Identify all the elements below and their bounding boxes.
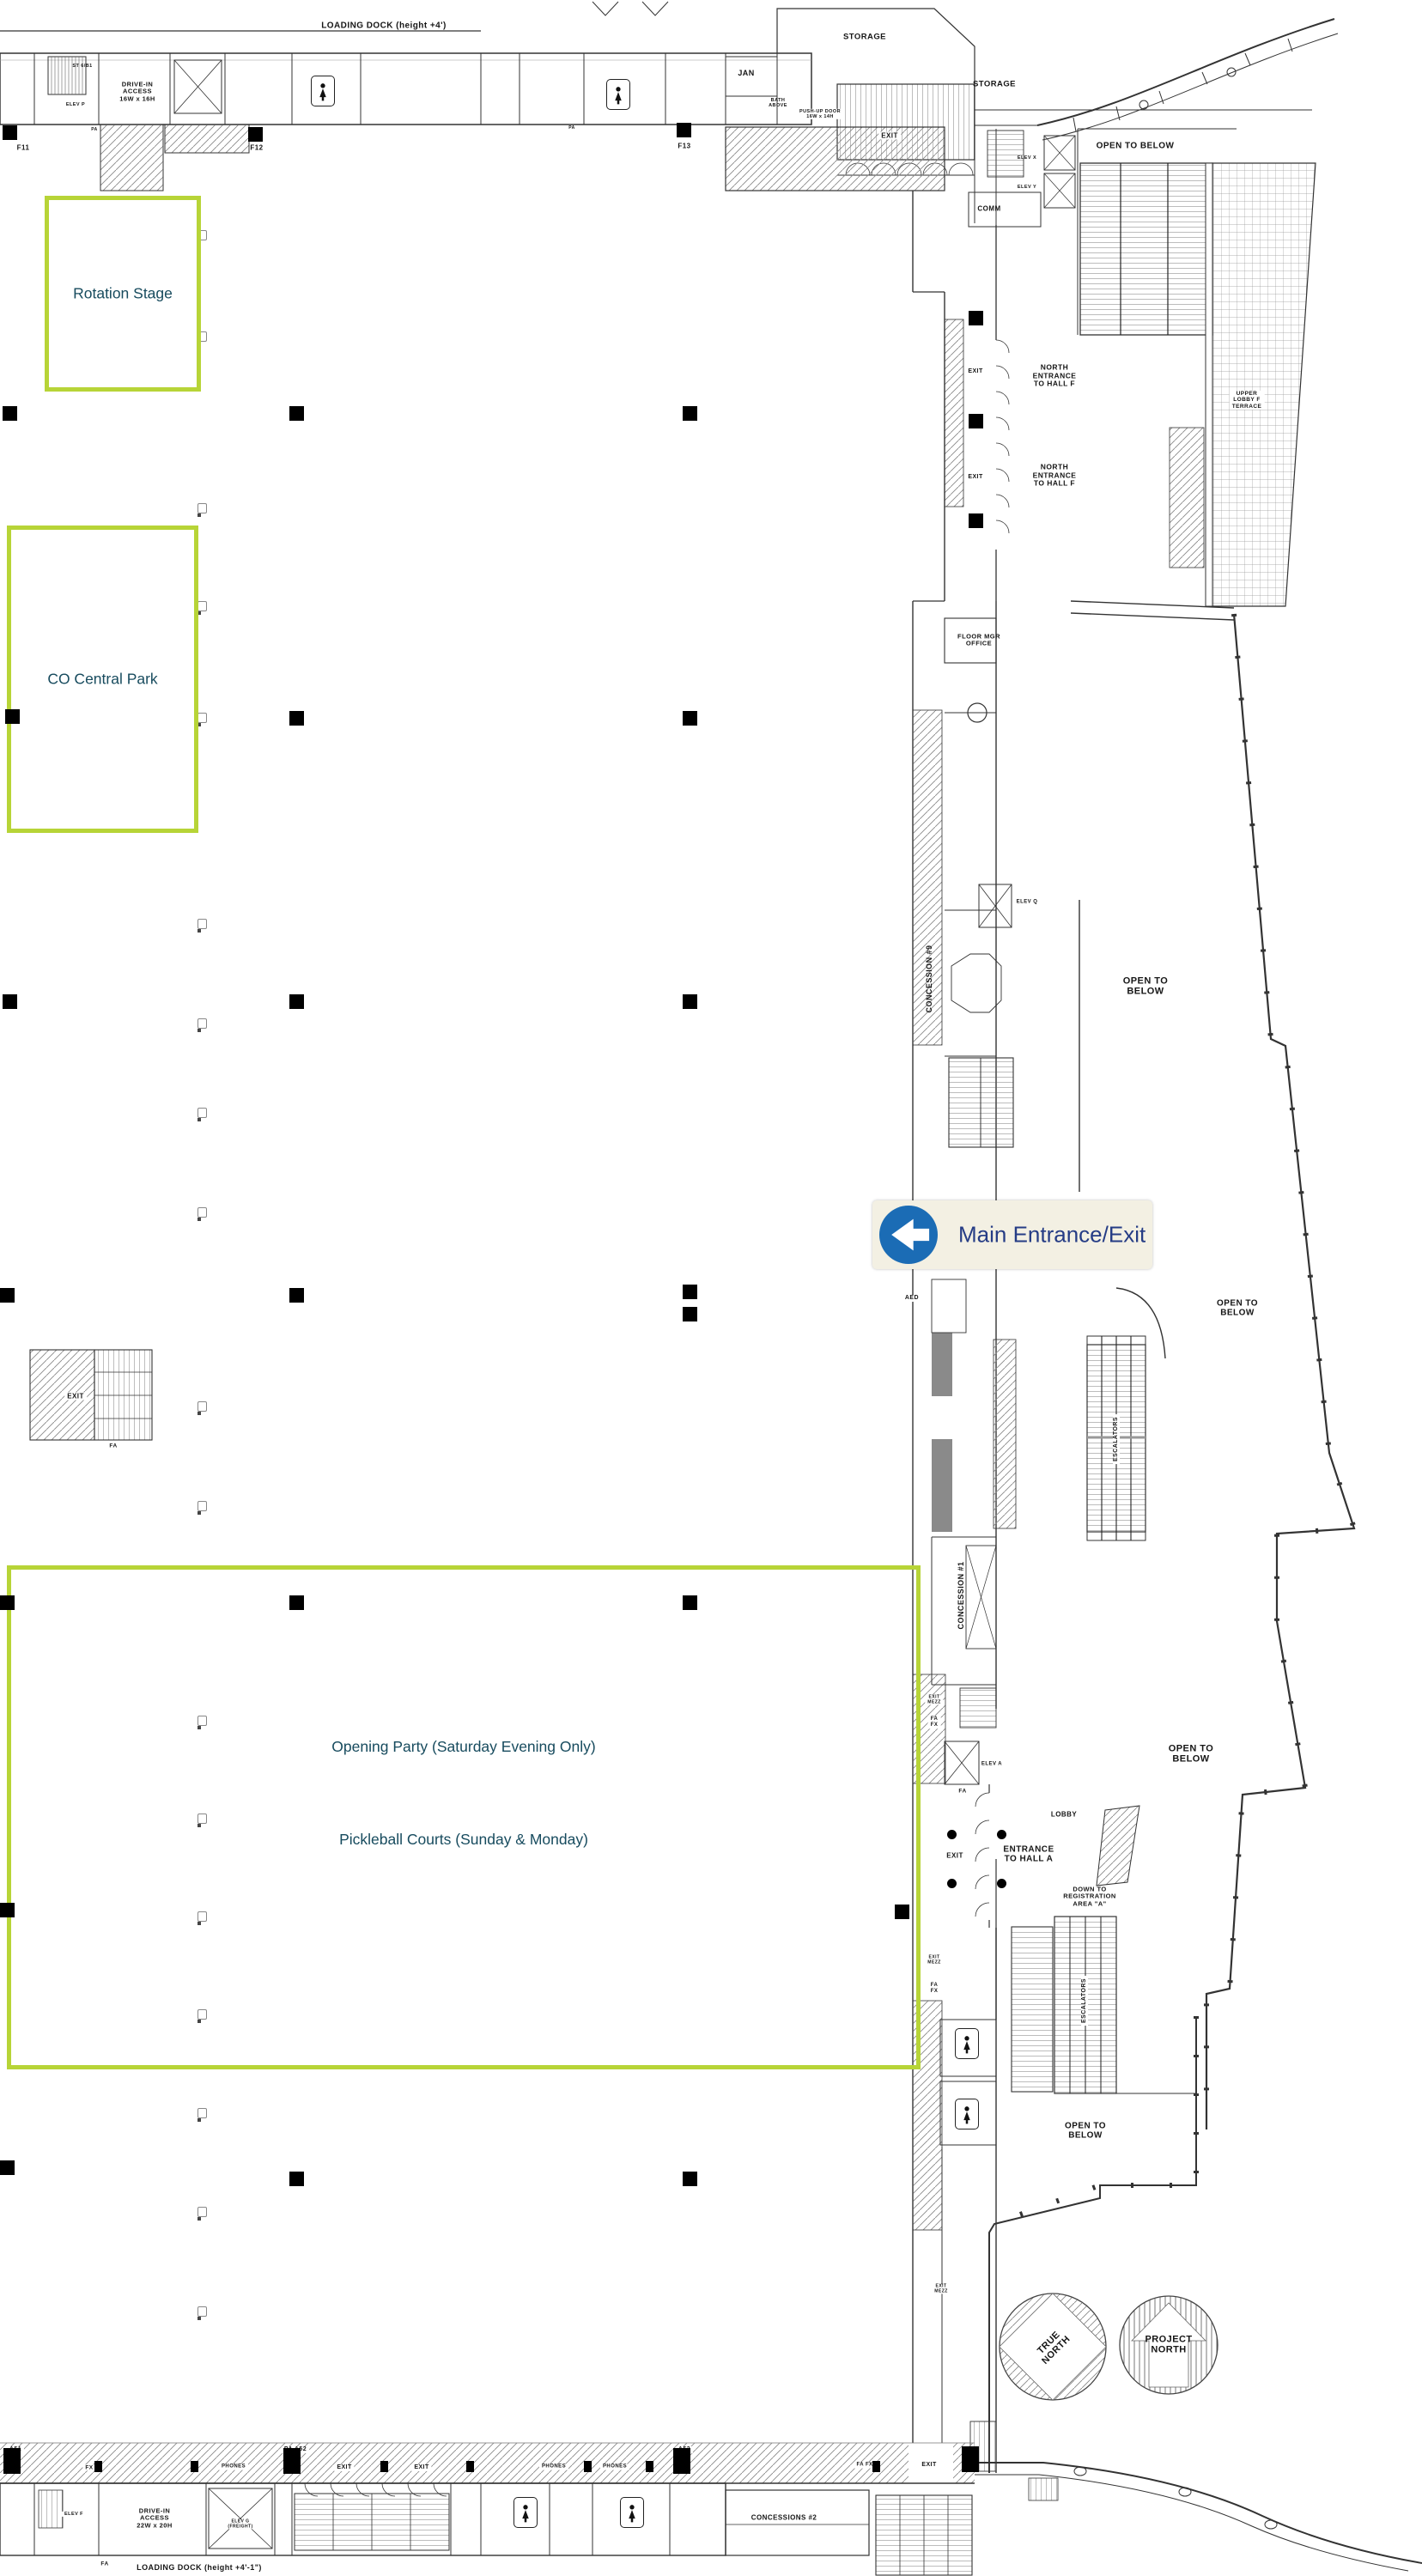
floor-port-icon	[197, 1108, 207, 1118]
rotation-stage-label: Rotation Stage	[73, 285, 173, 303]
label-elev-y: ELEV Y	[1018, 185, 1036, 190]
entry-dot-marker	[947, 1830, 957, 1839]
column-marker	[0, 1595, 15, 1610]
floor-port-icon	[197, 601, 207, 611]
column-marker	[895, 1905, 909, 1919]
column-marker	[683, 994, 697, 1009]
label-exit-stair-left: EXIT	[64, 1392, 87, 1400]
restroom-icon	[606, 79, 630, 110]
floor-port-icon	[197, 2306, 207, 2317]
label-fa-fx-1: FA FX	[928, 1716, 941, 1728]
label-open-to-below-2: OPEN TO BELOW	[1123, 976, 1168, 998]
overlay-rotation-stage[interactable]: Rotation Stage	[45, 196, 201, 392]
label-comm: COMM	[977, 204, 1000, 212]
column-marker	[289, 1595, 304, 1610]
floor-port-icon	[197, 713, 207, 723]
column-marker	[289, 2172, 304, 2186]
hall-floor-misc-linework	[30, 1350, 152, 1440]
label-concessions-2: CONCESSIONS #2	[751, 2513, 817, 2521]
label-fa-lobby: FA	[958, 1788, 966, 1794]
label-exit-bottom-1: EXIT	[334, 2464, 354, 2471]
label-storage-top-2: STORAGE	[973, 81, 1016, 90]
label-pa-top-2: PA	[568, 126, 574, 131]
restroom-icon	[955, 2028, 979, 2059]
label-drive-in-access-top: DRIVE-IN ACCESS 16W x 16H	[119, 81, 155, 102]
main-entrance-badge[interactable]: Main Entrance/Exit	[872, 1200, 1152, 1269]
column-marker	[248, 127, 263, 142]
entry-dot-marker	[947, 1879, 957, 1888]
label-exit-hall-f-1: EXIT	[965, 368, 985, 375]
label-phones-2: PHONES	[539, 2464, 568, 2470]
floor-port-icon	[197, 1018, 207, 1029]
floor-port-icon	[197, 1501, 207, 1511]
column-marker	[3, 994, 17, 1009]
pickleball-courts-label: Pickleball Courts (Sunday & Monday)	[339, 1831, 588, 1849]
label-exit-hall-a: EXIT	[944, 1851, 966, 1859]
lobby-f-linework	[945, 163, 1354, 2473]
label-floor-mgr-office: FLOOR MGR OFFICE	[957, 634, 1000, 648]
column-marker	[677, 123, 691, 137]
label-storage-top-1: STORAGE	[843, 33, 886, 43]
column-marker	[283, 2448, 301, 2474]
column-marker	[3, 125, 17, 140]
column-marker	[94, 2461, 102, 2472]
column-marker	[962, 2446, 979, 2472]
label-entrance-hall-a: ENTRANCE TO HALL A	[1003, 1845, 1054, 1865]
column-marker	[872, 2461, 880, 2472]
column-marker	[683, 2172, 697, 2186]
floor-port-icon	[197, 2108, 207, 2118]
label-north-entrance-1: NORTH ENTRANCE TO HALL F	[1033, 364, 1077, 389]
floor-port-icon	[197, 1401, 207, 1412]
column-marker	[969, 513, 983, 528]
label-pa-top-1: PA	[88, 128, 100, 133]
column-marker	[289, 406, 304, 421]
column-marker	[584, 2461, 592, 2472]
column-marker	[683, 1595, 697, 1610]
label-drive-in-access-bottom: DRIVE-IN ACCESS 22W x 20H	[137, 2507, 173, 2529]
restroom-icon	[620, 2497, 644, 2528]
column-marker	[969, 311, 983, 325]
restroom-icon	[311, 76, 335, 106]
floor-port-icon	[197, 503, 207, 513]
opening-party-label: Opening Party (Saturday Evening Only)	[331, 1738, 595, 1756]
column-marker	[3, 2448, 21, 2474]
floor-plan-canvas: LOADING DOCK (height +4')JANBATH ABOVEPU…	[0, 0, 1422, 2576]
column-marker	[683, 406, 697, 421]
floor-port-icon	[197, 919, 207, 929]
label-exit-mezz-1: EXIT MEZZ	[925, 1695, 943, 1704]
co-central-park-label: CO Central Park	[47, 671, 157, 689]
label-open-to-below-3: OPEN TO BELOW	[1217, 1299, 1258, 1319]
label-upper-lobby-f-terrace: UPPER LOBBY F TERRACE	[1230, 391, 1265, 410]
label-exit-mezz-2: EXIT MEZZ	[925, 1955, 943, 1965]
label-elev-f: ELEV F	[62, 2512, 86, 2517]
label-elev-q: ELEV Q	[1017, 900, 1038, 906]
column-marker	[683, 1307, 697, 1321]
floor-port-icon	[197, 1207, 207, 1218]
column-marker	[5, 709, 20, 724]
label-open-to-below-1: OPEN TO BELOW	[1097, 141, 1175, 150]
entry-dot-marker	[997, 1879, 1006, 1888]
label-project-north: PROJECT NORTH	[1145, 2335, 1192, 2356]
overlay-event-area[interactable]: Opening Party (Saturday Evening Only) Pi…	[7, 1565, 921, 2069]
label-aed: AED	[902, 1295, 921, 1302]
label-down-to-registration: DOWN TO REGISTRATION AREA "A"	[1063, 1886, 1116, 1907]
label-open-to-below-4: OPEN TO BELOW	[1169, 1744, 1213, 1765]
column-marker	[466, 2461, 474, 2472]
label-elev-a: ELEV A	[981, 1762, 1002, 1768]
column-marker	[289, 1288, 304, 1303]
restroom-icon	[955, 2099, 979, 2129]
label-push-up-door: PUSH-UP DOOR 16W x 14H	[797, 109, 843, 119]
floor-port-icon	[197, 2207, 207, 2217]
label-elev-g-freight: ELEV G (FREIGHT)	[225, 2519, 255, 2529]
label-exit-bottom-2: EXIT	[411, 2464, 431, 2471]
column-marker	[0, 2160, 15, 2175]
label-phones-3: PHONES	[600, 2464, 629, 2470]
label-elev-p: ELEV P	[64, 102, 88, 107]
label-fa-fx-2: FA FX	[928, 1983, 941, 1995]
label-fa-stair-left: FA	[109, 1443, 117, 1449]
floorplan-linework	[0, 0, 1422, 2576]
column-marker	[289, 994, 304, 1009]
arrow-left-icon	[879, 1206, 938, 1264]
label-lobby: LOBBY	[1051, 1810, 1077, 1818]
label-exit-bottom-3: EXIT	[919, 2462, 939, 2469]
label-jan: JAN	[738, 69, 754, 77]
label-elev-x: ELEV X	[1018, 155, 1036, 161]
label-bath-above: BATH ABOVE	[769, 98, 787, 108]
main-entrance-label: Main Entrance/Exit	[958, 1222, 1145, 1249]
label-loading-dock-bottom: LOADING DOCK (height +4'-1")	[137, 2563, 262, 2572]
column-marker	[683, 711, 697, 726]
label-f12: F12	[250, 143, 263, 151]
label-f11: F11	[17, 143, 30, 151]
label-north-entrance-2: NORTH ENTRANCE TO HALL F	[1033, 464, 1077, 489]
restroom-icon	[513, 2497, 538, 2528]
column-marker	[380, 2461, 388, 2472]
column-marker	[0, 1288, 15, 1303]
column-marker	[673, 2448, 690, 2474]
label-loading-dock-top: LOADING DOCK (height +4')	[321, 21, 447, 30]
label-open-to-below-5: OPEN TO BELOW	[1065, 2122, 1106, 2142]
label-fa-bottom: FA	[100, 2561, 108, 2567]
label-concession-1: CONCESSION #1	[957, 1562, 965, 1630]
entry-dot-marker	[997, 1830, 1006, 1839]
column-marker	[0, 1903, 15, 1917]
column-marker	[683, 1285, 697, 1299]
loading-dock-bottom-linework	[0, 2443, 1422, 2575]
overlay-co-central-park[interactable]: CO Central Park	[7, 526, 198, 833]
label-exit-mezz-3: EXIT MEZZ	[932, 2284, 950, 2293]
label-escalators-2: ESCALATORS	[1081, 1976, 1088, 2026]
central-corridor-linework	[913, 191, 1016, 2482]
label-exit-hall-f-2: EXIT	[965, 474, 985, 481]
label-exit-top-center: EXIT	[878, 131, 901, 139]
label-concession-9: CONCESSION #9	[925, 945, 933, 1013]
column-marker	[3, 406, 17, 421]
column-marker	[289, 711, 304, 726]
column-marker	[646, 2461, 653, 2472]
label-escalators-1: ESCALATORS	[1113, 1414, 1120, 1464]
label-phones-1: PHONES	[219, 2464, 248, 2470]
label-stair-tag-top: ST 6/B1	[72, 64, 92, 69]
column-marker	[969, 414, 983, 428]
label-f13: F13	[678, 142, 690, 149]
column-marker	[191, 2461, 198, 2472]
